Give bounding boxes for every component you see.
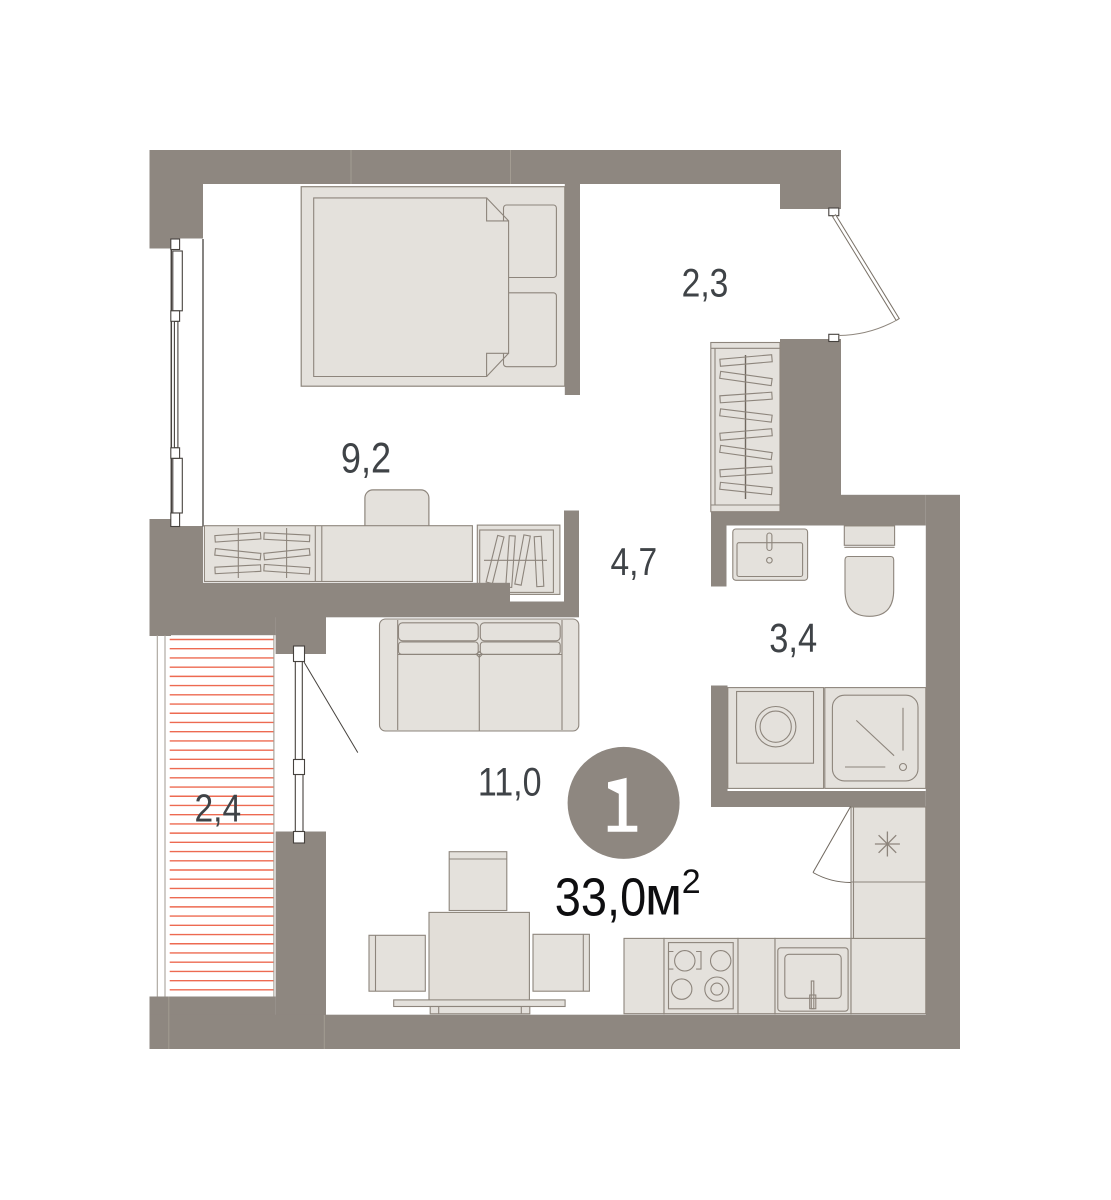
svg-text:2,3: 2,3 <box>682 261 729 305</box>
svg-text:11,0: 11,0 <box>478 759 542 804</box>
svg-text:9,2: 9,2 <box>341 434 391 482</box>
svg-text:4,7: 4,7 <box>610 540 657 584</box>
svg-text:м: м <box>645 867 682 927</box>
svg-text:3,4: 3,4 <box>769 616 817 661</box>
svg-text:33,0: 33,0 <box>555 866 646 927</box>
svg-text:2: 2 <box>682 863 701 901</box>
svg-text:2,4: 2,4 <box>194 786 241 830</box>
